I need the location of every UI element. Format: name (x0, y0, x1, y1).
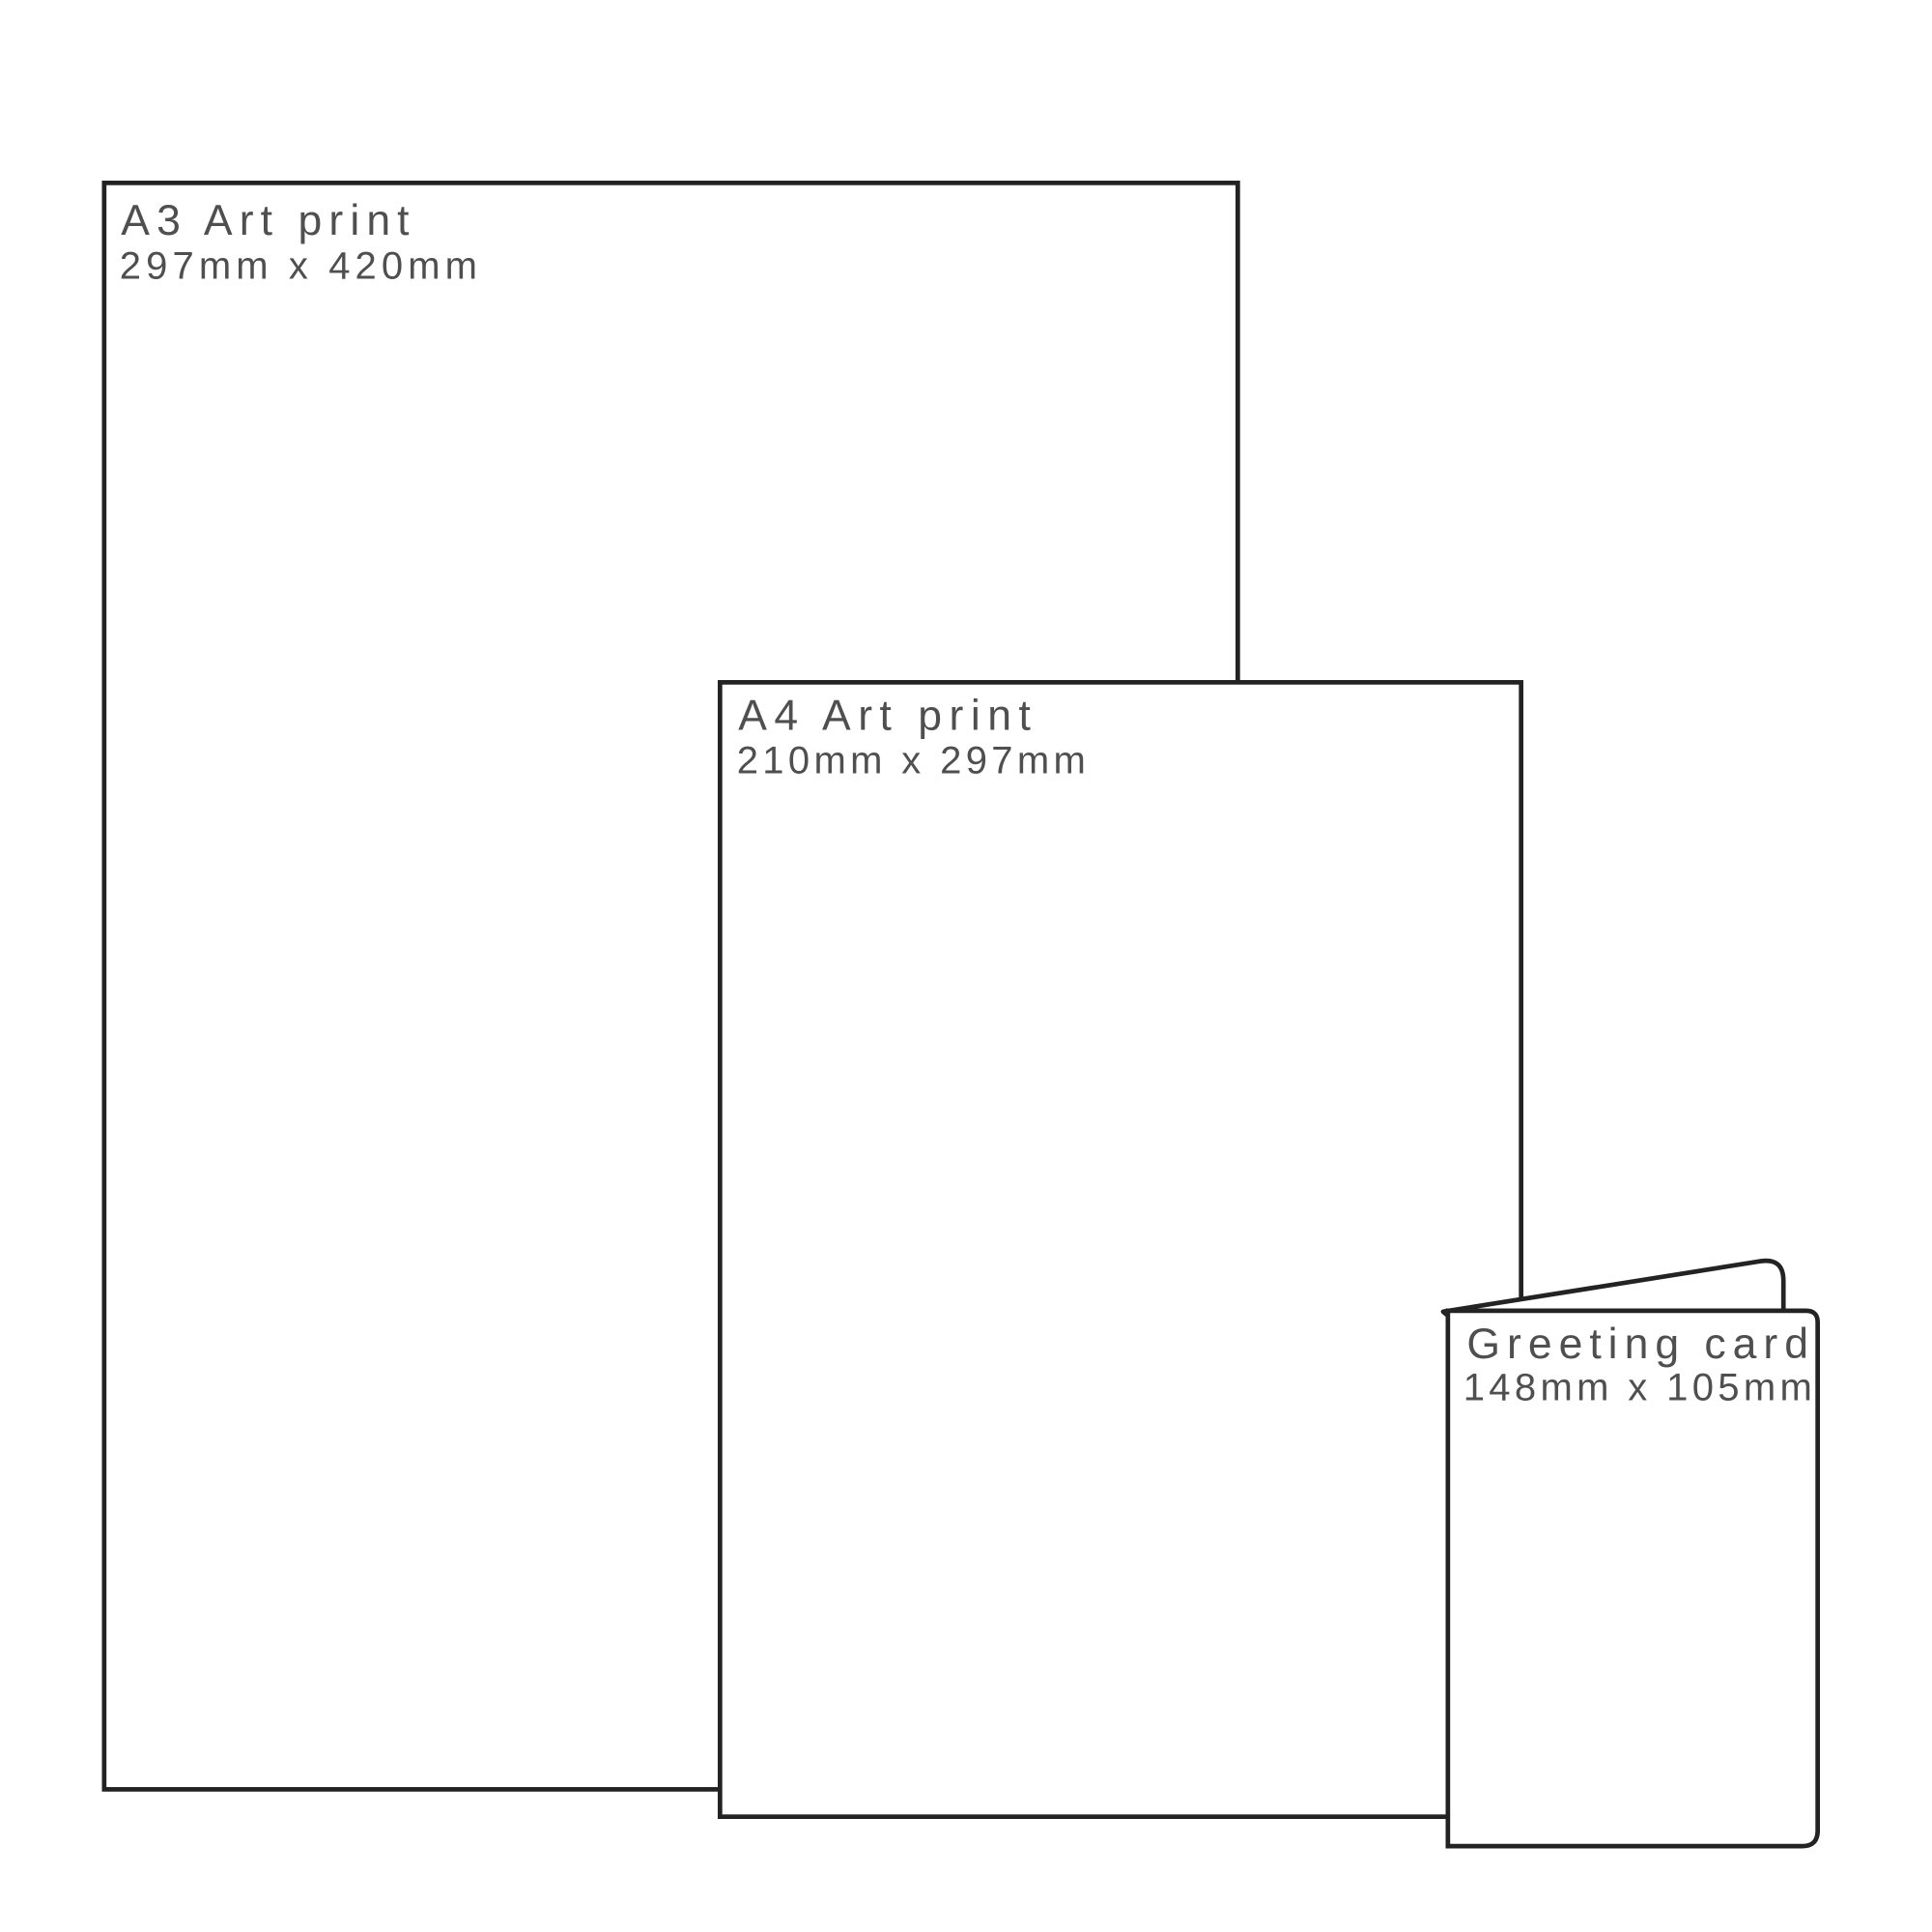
svg-text:297mm x 420mm: 297mm x 420mm (120, 244, 482, 287)
svg-text:210mm x 297mm: 210mm x 297mm (737, 739, 1091, 781)
svg-text:148mm x 105mm: 148mm x 105mm (1463, 1367, 1817, 1409)
svg-text:A4 Art print: A4 Art print (738, 693, 1037, 740)
svg-text:A3 Art print: A3 Art print (121, 197, 415, 244)
svg-text:Greeting card: Greeting card (1466, 1321, 1815, 1368)
